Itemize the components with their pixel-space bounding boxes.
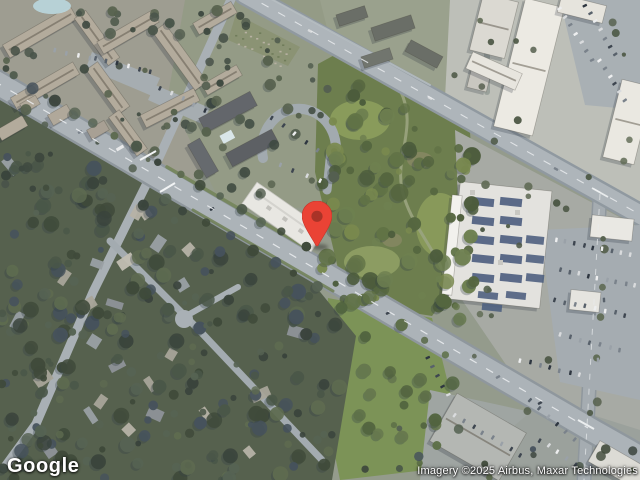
map-pin-icon[interactable] <box>302 201 332 247</box>
google-logo[interactable]: Google <box>7 455 80 478</box>
attribution-text: Imagery ©2025 Airbus, Maxar Technologies <box>417 465 638 477</box>
cul-de-sac <box>175 310 193 328</box>
map-viewport[interactable]: Google Imagery ©2025 Airbus, Maxar Techn… <box>0 0 640 480</box>
